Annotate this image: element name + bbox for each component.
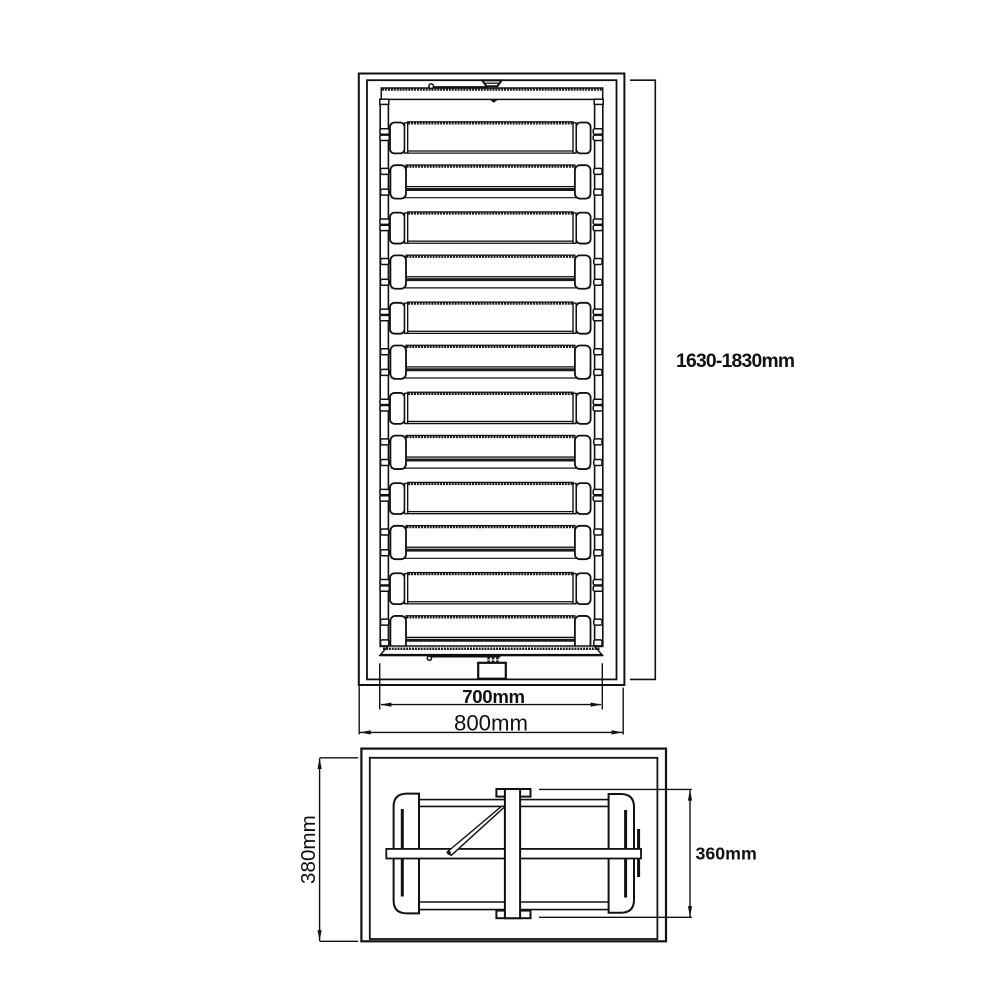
svg-text:380mm: 380mm xyxy=(297,815,320,884)
svg-text:800mm: 800mm xyxy=(454,711,528,736)
svg-text:700mm: 700mm xyxy=(462,686,525,707)
svg-text:1630-1830mm: 1630-1830mm xyxy=(676,351,794,372)
svg-text:360mm: 360mm xyxy=(696,843,757,863)
